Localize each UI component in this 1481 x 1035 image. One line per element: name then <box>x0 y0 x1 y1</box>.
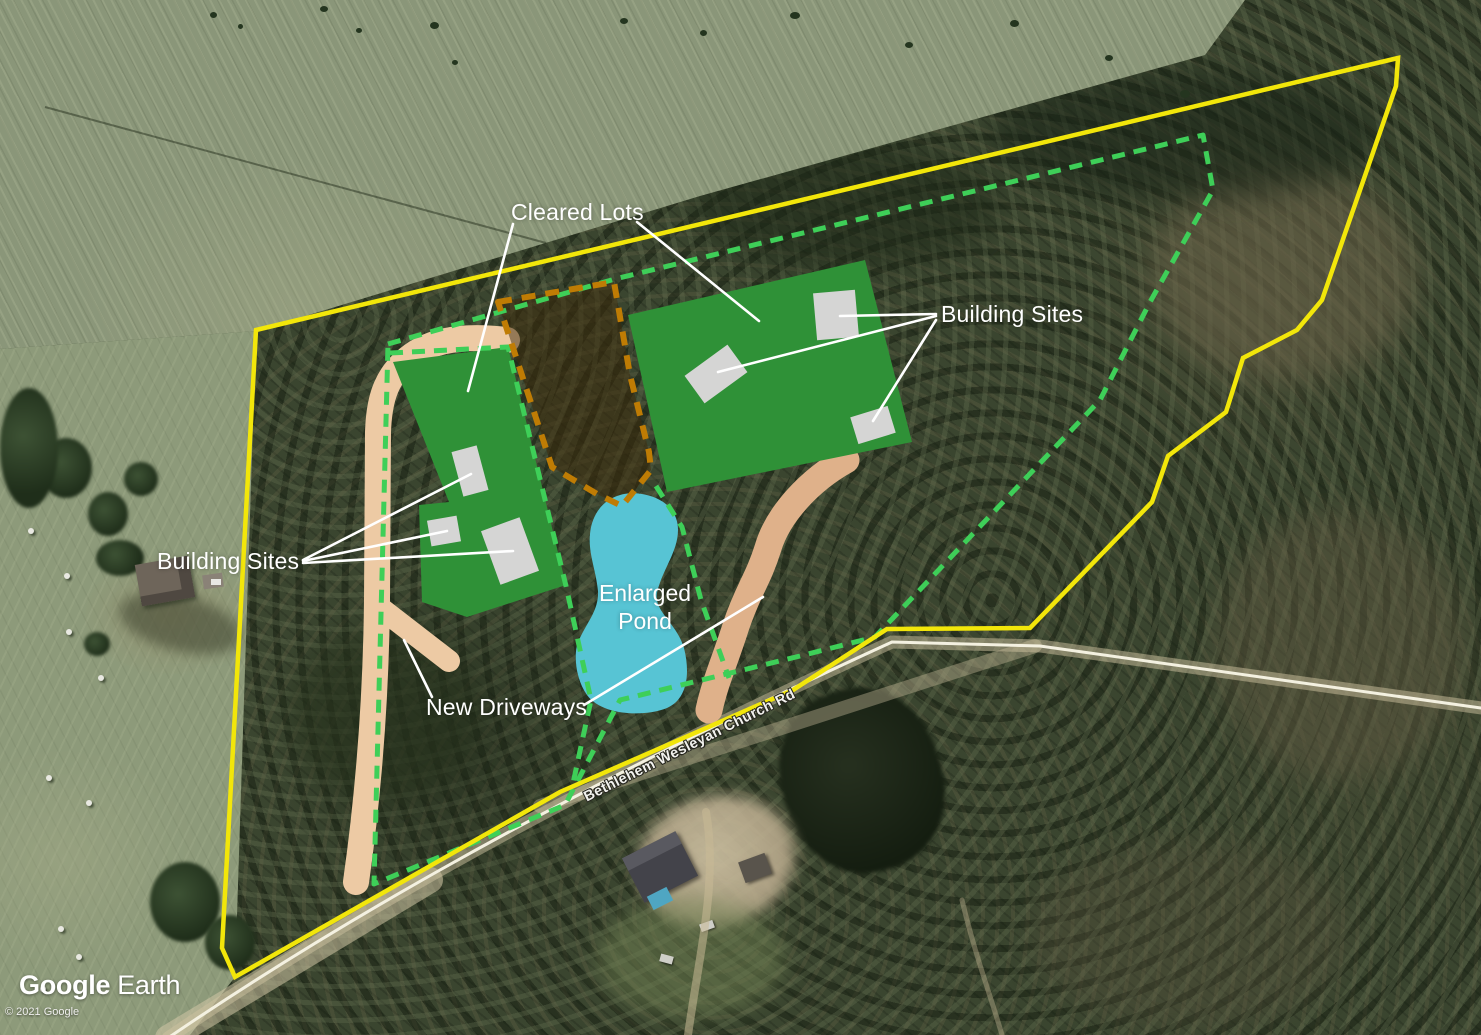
new-driveways-label: New Driveways <box>426 694 587 721</box>
property-boundary <box>222 58 1398 977</box>
google-earth-logo: GoogleEarth <box>19 970 180 1001</box>
power-line-shadow <box>45 107 546 243</box>
dirt-trail <box>688 812 710 1035</box>
enlarged-pond-label-line1: Enlarged <box>599 580 691 606</box>
logo-earth: Earth <box>117 970 180 1000</box>
satellite-map: Cleared Lots Building Sites Building Sit… <box>0 0 1481 1035</box>
plan-overlay <box>0 0 1481 1035</box>
dirt-trail <box>962 900 1002 1035</box>
building-sites-label-east: Building Sites <box>941 301 1083 328</box>
copyright-text: © 2021 Google <box>5 1006 79 1018</box>
enlarged-pond-label-line2: Pond <box>618 608 672 634</box>
cleared-lot-east <box>628 260 912 492</box>
logo-google: Google <box>19 970 110 1000</box>
building-sites-label-west: Building Sites <box>157 548 299 575</box>
driveway-west-spur <box>383 610 449 661</box>
enlarged-pond-label: Enlarged Pond <box>592 579 698 635</box>
cleared-lots-label: Cleared Lots <box>511 199 644 226</box>
